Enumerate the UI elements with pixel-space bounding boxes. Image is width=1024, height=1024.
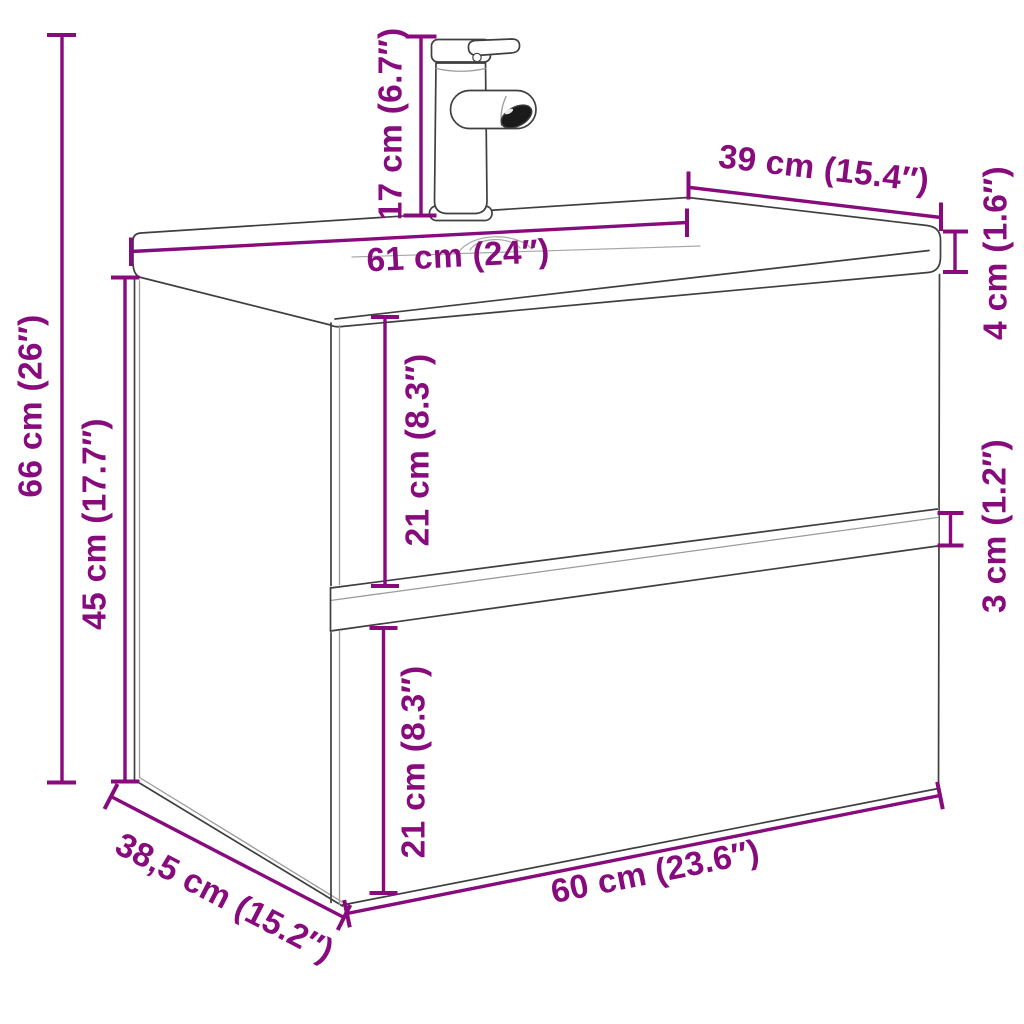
dim-label-total-height: 66 cm (26″) xyxy=(13,314,50,497)
dim-faucet-height: 17 cm (6.7″) xyxy=(373,28,437,221)
faucet-screw-icon xyxy=(473,53,481,61)
dim-label-cabinet-width: 60 cm (23.6″) xyxy=(548,833,763,911)
dim-label-basin-depth: 39 cm (15.4″) xyxy=(717,138,932,200)
dim-cabinet-height: 45 cm (17.7″) xyxy=(77,278,140,783)
dim-total-height: 66 cm (26″) xyxy=(13,35,76,783)
faucet xyxy=(430,39,537,221)
dim-label-cabinet-height: 45 cm (17.7″) xyxy=(77,418,114,630)
dim-label-faucet-height: 17 cm (6.7″) xyxy=(373,28,410,221)
dim-lower-drawer-height: 21 cm (8.3″) xyxy=(370,628,433,893)
dim-basin-thickness: 4 cm (1.6″) xyxy=(943,166,1015,340)
dimension-diagram: 66 cm (26″) 45 cm (17.7″) 17 cm (6.7″) 6… xyxy=(0,0,1024,1024)
dim-line xyxy=(347,796,940,914)
faucet-body xyxy=(435,63,488,214)
dim-label-drawer-gap: 3 cm (1.2″) xyxy=(977,439,1014,613)
dim-label-upper-drawer: 21 cm (8.3″) xyxy=(400,354,437,547)
dim-cabinet-depth: 38,5 cm (15.2″) xyxy=(105,784,351,970)
dim-label-basin-thickness: 4 cm (1.6″) xyxy=(978,166,1015,340)
dim-tick xyxy=(937,782,943,809)
dim-tick xyxy=(105,784,118,809)
dim-cabinet-width: 60 cm (23.6″) xyxy=(344,782,943,928)
dim-upper-drawer-height: 21 cm (8.3″) xyxy=(371,317,437,586)
vanity-diagram-canvas: 66 cm (26″) 45 cm (17.7″) 17 cm (6.7″) 6… xyxy=(0,0,1024,1024)
front-right-corner-edge xyxy=(939,275,940,789)
dim-drawer-gap: 3 cm (1.2″) xyxy=(938,439,1014,613)
dim-label-lower-drawer: 21 cm (8.3″) xyxy=(396,666,433,859)
